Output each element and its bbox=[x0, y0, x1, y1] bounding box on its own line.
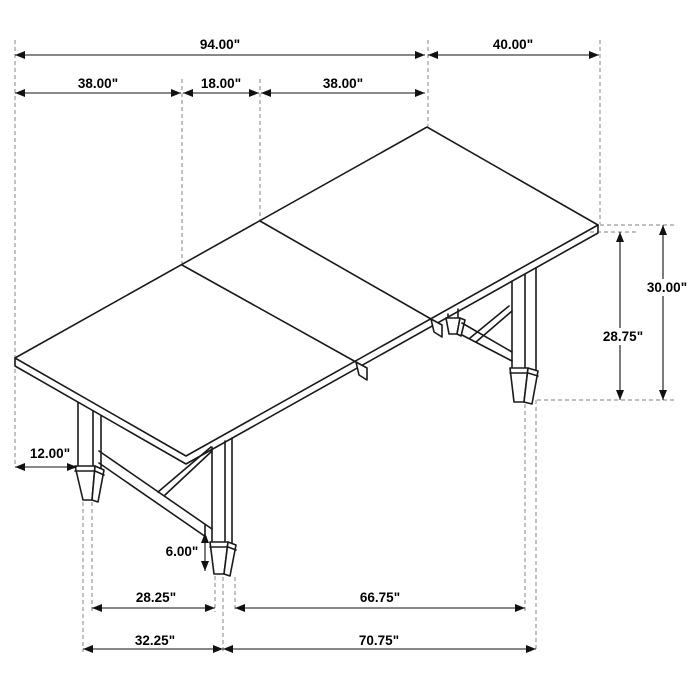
dim-label-left-base-span: 32.25" bbox=[135, 633, 175, 648]
left-trestle bbox=[99, 447, 212, 537]
dim-label-leg-inset: 12.00" bbox=[30, 446, 70, 461]
dim-label-overall-length: 94.00" bbox=[200, 37, 240, 52]
dim-label-width: 40.00" bbox=[493, 37, 533, 52]
front-right-leg bbox=[510, 268, 538, 404]
dim-label-inner-leg-span: 28.25" bbox=[136, 590, 176, 605]
dim-label-height: 30.00" bbox=[647, 280, 687, 295]
table-dimension-diagram: 94.00" 40.00" 38.00" 18.00" 38.00" 30.00… bbox=[0, 0, 700, 700]
dim-label-right-base-span: 70.75" bbox=[359, 633, 399, 648]
dim-label-left-section: 38.00" bbox=[78, 76, 118, 91]
dim-label-stretcher-clearance: 6.00" bbox=[166, 544, 199, 559]
left-stretcher-beam bbox=[99, 451, 212, 537]
dim-label-leaf-section: 18.00" bbox=[201, 76, 241, 91]
dim-label-right-leg-span: 66.75" bbox=[360, 590, 400, 605]
seam-1-slide-bracket bbox=[356, 362, 367, 380]
right-stretcher-beam bbox=[462, 323, 512, 361]
tabletop-surface bbox=[15, 127, 598, 456]
rear-left-leg-post bbox=[212, 438, 232, 544]
dimension-drawing: 94.00" 40.00" 38.00" 18.00" 38.00" 30.00… bbox=[0, 0, 700, 700]
right-trestle bbox=[462, 306, 512, 361]
front-right-leg-post bbox=[512, 268, 536, 370]
dim-label-right-section: 38.00" bbox=[323, 76, 363, 91]
right-diagonal-brace bbox=[470, 306, 512, 342]
dim-label-underside-height: 28.75" bbox=[603, 329, 643, 344]
front-left-leg-post bbox=[78, 402, 101, 468]
table bbox=[15, 127, 598, 576]
rear-left-leg bbox=[210, 438, 236, 576]
